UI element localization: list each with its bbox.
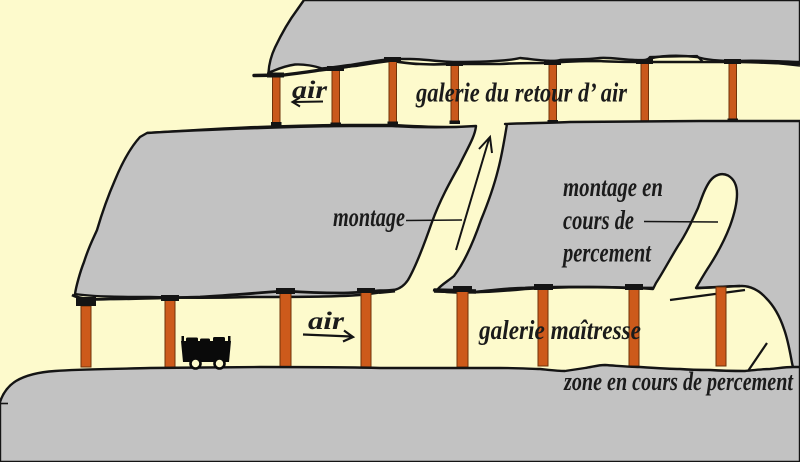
svg-text:zone en cours de percement: zone en cours de percement [563,367,793,396]
svg-text:air: air [308,308,344,335]
svg-text:galerie du retour d’ air: galerie du retour d’ air [415,78,627,108]
svg-text:cours de: cours de [563,205,634,235]
svg-text:montage en: montage en [563,172,663,202]
svg-text:galerie maîtresse: galerie maîtresse [478,315,641,345]
svg-text:montage: montage [333,202,405,232]
svg-text:percement: percement [561,238,652,268]
